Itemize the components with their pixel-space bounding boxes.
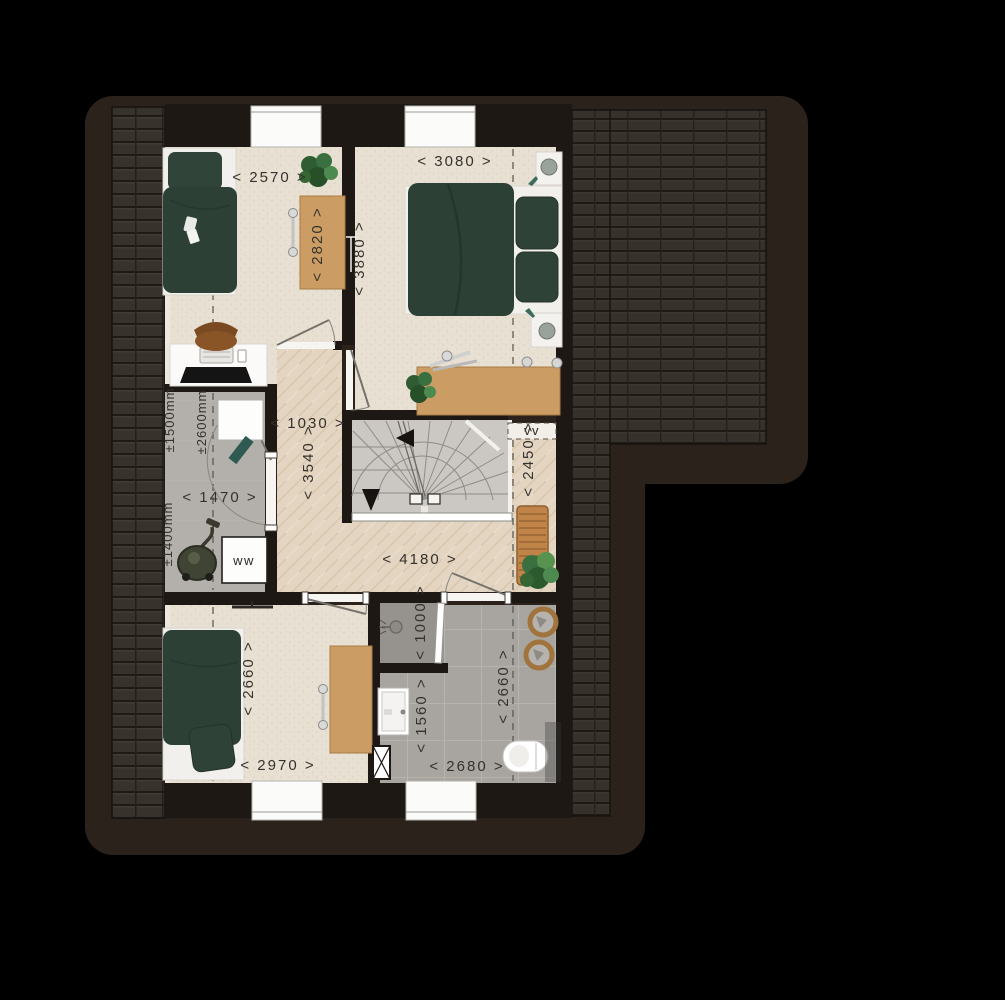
window-bottom-2 xyxy=(406,781,476,820)
wall-stairwell-left xyxy=(342,420,352,523)
stair-newel-2 xyxy=(428,494,440,504)
height-label-1400: ±1400mm xyxy=(160,502,175,567)
bed-single-1 xyxy=(163,148,237,295)
faucet-icon xyxy=(401,710,406,715)
towel-basket-1 xyxy=(530,609,556,635)
dim-master-depth: < 3880 > xyxy=(351,220,368,295)
stair-balustrade xyxy=(352,513,512,521)
desk-mat xyxy=(180,367,252,383)
dim-master-width: < 3080 > xyxy=(417,153,492,170)
floorplan-drawing: vv xyxy=(0,0,1005,1000)
roof-tiles-right-strip xyxy=(572,110,610,816)
dim-shower-width: < 1000 > xyxy=(412,584,429,659)
wall-bath-top-right xyxy=(508,592,556,603)
dim-utility-width: < 1470 > xyxy=(182,489,257,506)
dim-bedroom3-width: < 2970 > xyxy=(240,757,315,774)
shower-head-icon xyxy=(390,621,402,633)
window-top-2 xyxy=(405,106,475,147)
dim-bedroom1-depth: < 2820 > xyxy=(309,206,326,281)
dim-bedroom1-width: < 2570 > xyxy=(232,169,307,186)
wall-top xyxy=(165,104,556,147)
bed-single-3 xyxy=(163,628,244,780)
bed-double xyxy=(405,183,562,316)
dim-bath-width: < 2680 > xyxy=(429,758,504,775)
lamp-icon xyxy=(539,323,555,339)
sink xyxy=(378,688,409,735)
staircase xyxy=(352,420,512,521)
window-bottom-1 xyxy=(252,781,322,820)
wall-bottom xyxy=(165,783,556,818)
chair-desk-alcove xyxy=(194,322,238,351)
wall-landing-bottom-left xyxy=(165,592,305,605)
dim-bedroom3-depth: < 2660 > xyxy=(240,640,257,715)
height-label-1500: ±1500mm xyxy=(162,388,177,453)
desk-bedroom3 xyxy=(330,646,372,753)
washing-machine-label: ww xyxy=(232,553,255,568)
floorplan-canvas: vv xyxy=(0,0,1005,1000)
toilet-partition xyxy=(545,722,561,782)
towel-basket-2 xyxy=(526,642,552,668)
utility-cabinet xyxy=(218,400,263,440)
dim-hall-depth: < 3540 > xyxy=(300,424,317,499)
dim-bath-sink-depth: < 1560 > xyxy=(413,677,430,752)
stair-newel-1 xyxy=(410,494,422,504)
washing-machine: ww xyxy=(222,537,267,583)
wall-shower-bottom xyxy=(374,663,448,673)
dim-bath-depth: < 2660 > xyxy=(495,648,512,723)
dim-stair-side-depth: < 2450 > xyxy=(520,421,537,496)
height-label-2600: ±2600mm xyxy=(194,390,209,455)
nightstand-bottom xyxy=(525,308,562,347)
toilet xyxy=(503,741,548,772)
duct-shaft xyxy=(373,746,390,779)
dim-landing-width: < 4180 > xyxy=(382,551,457,568)
window-top-1 xyxy=(251,106,321,147)
lamp-icon xyxy=(541,159,557,175)
roof-tiles-left-strip xyxy=(112,107,165,818)
